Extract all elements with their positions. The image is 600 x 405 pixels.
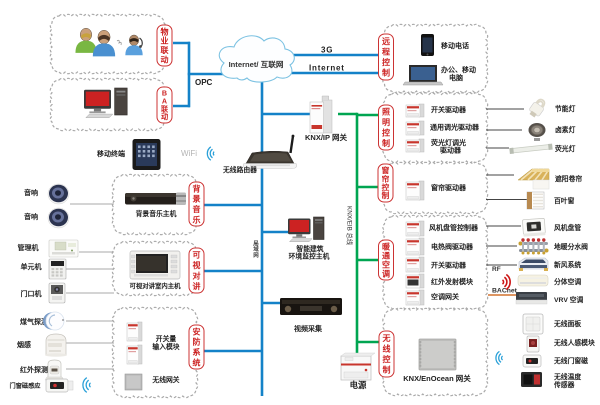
- svg-text:无线门窗磁: 无线门窗磁: [553, 356, 588, 365]
- svg-text:防: 防: [193, 337, 201, 347]
- svg-text:BACnet: BACnet: [492, 288, 518, 295]
- svg-text:对: 对: [193, 271, 201, 281]
- svg-text:管理机: 管理机: [18, 243, 39, 252]
- svg-text:无线温度: 无线温度: [553, 372, 581, 381]
- svg-text:门口机: 门口机: [21, 289, 42, 298]
- svg-text:移动电话: 移动电话: [441, 41, 469, 50]
- svg-text:传感器: 传感器: [553, 380, 575, 389]
- svg-text:联: 联: [161, 104, 169, 113]
- svg-text:制: 制: [383, 364, 391, 374]
- svg-text:无线网关: 无线网关: [151, 375, 179, 384]
- svg-text:荧光灯: 荧光灯: [555, 144, 576, 153]
- svg-text:新风系统: 新风系统: [554, 260, 581, 269]
- svg-text:荧光灯调光: 荧光灯调光: [431, 138, 466, 147]
- svg-text:驱动器: 驱动器: [440, 146, 462, 155]
- svg-text:KNX/EIB 总线: KNX/EIB 总线: [346, 206, 355, 246]
- svg-text:智能建筑: 智能建筑: [296, 244, 323, 253]
- svg-text:电源: 电源: [350, 380, 367, 390]
- svg-text:红外发射模块: 红外发射模块: [431, 277, 474, 286]
- svg-text:红外探测: 红外探测: [20, 365, 48, 374]
- svg-text:开关驱动器: 开关驱动器: [431, 261, 467, 270]
- svg-text:VRV 空调: VRV 空调: [554, 295, 584, 304]
- svg-text:无: 无: [382, 334, 391, 343]
- svg-text:遮阳卷帘: 遮阳卷帘: [555, 174, 582, 183]
- svg-text:背: 背: [193, 183, 201, 193]
- svg-text:门窗磁感应: 门窗磁感应: [10, 382, 42, 390]
- svg-text:开关驱动器: 开关驱动器: [431, 105, 467, 114]
- svg-text:KNX/IP 网关: KNX/IP 网关: [305, 132, 347, 142]
- svg-text:OPC: OPC: [195, 78, 213, 87]
- svg-text:程: 程: [382, 47, 390, 57]
- svg-text:可: 可: [193, 251, 201, 260]
- svg-text:无线人感模块: 无线人感模块: [553, 338, 595, 347]
- svg-text:KNX/EnOcean 网关: KNX/EnOcean 网关: [403, 373, 471, 383]
- svg-text:控: 控: [382, 128, 390, 138]
- svg-text:动: 动: [161, 112, 168, 121]
- svg-text:系: 系: [193, 347, 201, 357]
- svg-text:B: B: [162, 90, 167, 98]
- svg-text:百叶窗: 百叶窗: [554, 196, 575, 205]
- svg-text:烟感: 烟感: [17, 340, 31, 349]
- svg-text:制: 制: [382, 138, 390, 148]
- svg-text:统: 统: [193, 357, 201, 367]
- svg-text:音响: 音响: [24, 212, 38, 221]
- svg-text:线: 线: [383, 344, 391, 354]
- svg-text:WiFi: WiFi: [181, 149, 197, 158]
- svg-text:调: 调: [382, 268, 390, 278]
- svg-text:控: 控: [383, 354, 391, 364]
- svg-text:输入模块: 输入模块: [152, 342, 179, 351]
- svg-text:Internet: Internet: [309, 64, 345, 73]
- svg-text:视频采集: 视频采集: [294, 324, 323, 333]
- svg-text:明: 明: [382, 118, 390, 127]
- svg-text:控: 控: [382, 57, 390, 67]
- svg-text:Internet/ 互联网: Internet/ 互联网: [229, 59, 284, 69]
- svg-text:A: A: [162, 98, 167, 106]
- svg-text:动: 动: [161, 54, 169, 64]
- svg-text:风机盘管: 风机盘管: [554, 223, 581, 232]
- svg-text:移动终端: 移动终端: [97, 149, 125, 158]
- svg-text:联: 联: [161, 45, 169, 55]
- svg-text:景: 景: [193, 194, 201, 204]
- svg-text:卤素灯: 卤素灯: [555, 125, 576, 134]
- svg-text:暖: 暖: [382, 241, 391, 251]
- svg-text:窗帘驱动器: 窗帘驱动器: [431, 183, 467, 192]
- svg-text:网: 网: [253, 251, 259, 259]
- svg-text:物: 物: [161, 26, 169, 36]
- svg-text:办公、移动: 办公、移动: [441, 65, 476, 74]
- svg-text:音: 音: [193, 204, 201, 214]
- svg-text:电热阀驱动器: 电热阀驱动器: [431, 242, 474, 251]
- svg-text:RF: RF: [492, 266, 501, 273]
- svg-text:无线路由器: 无线路由器: [222, 165, 257, 174]
- svg-text:电脑: 电脑: [449, 73, 463, 82]
- svg-text:空调网关: 空调网关: [431, 292, 459, 301]
- svg-text:地暖分水阀: 地暖分水阀: [554, 242, 588, 251]
- svg-text:安: 安: [193, 326, 201, 336]
- svg-text:可视对讲室内主机: 可视对讲室内主机: [129, 281, 181, 290]
- svg-text:空: 空: [382, 259, 390, 269]
- svg-text:通: 通: [382, 250, 390, 260]
- svg-text:单元机: 单元机: [21, 262, 42, 271]
- svg-text:远: 远: [382, 37, 390, 46]
- svg-text:环境监控主机: 环境监控主机: [289, 252, 330, 261]
- svg-text:制: 制: [382, 67, 390, 77]
- svg-text:音响: 音响: [24, 188, 38, 197]
- svg-text:制: 制: [382, 190, 390, 200]
- svg-text:风机盘管控制器: 风机盘管控制器: [429, 223, 479, 232]
- svg-text:照: 照: [382, 108, 390, 117]
- svg-text:业: 业: [161, 36, 169, 46]
- svg-text:分体空调: 分体空调: [554, 277, 581, 286]
- svg-text:乐: 乐: [193, 214, 201, 224]
- svg-text:开关量: 开关量: [156, 334, 177, 343]
- svg-text:讲: 讲: [193, 281, 201, 291]
- svg-text:3G: 3G: [321, 46, 333, 55]
- svg-text:视: 视: [193, 260, 201, 270]
- svg-text:无线面板: 无线面板: [553, 319, 581, 328]
- svg-text:通用调光驱动器: 通用调光驱动器: [430, 123, 480, 132]
- svg-text:背景音乐主机: 背景音乐主机: [136, 209, 177, 218]
- svg-text:节能灯: 节能灯: [555, 104, 576, 113]
